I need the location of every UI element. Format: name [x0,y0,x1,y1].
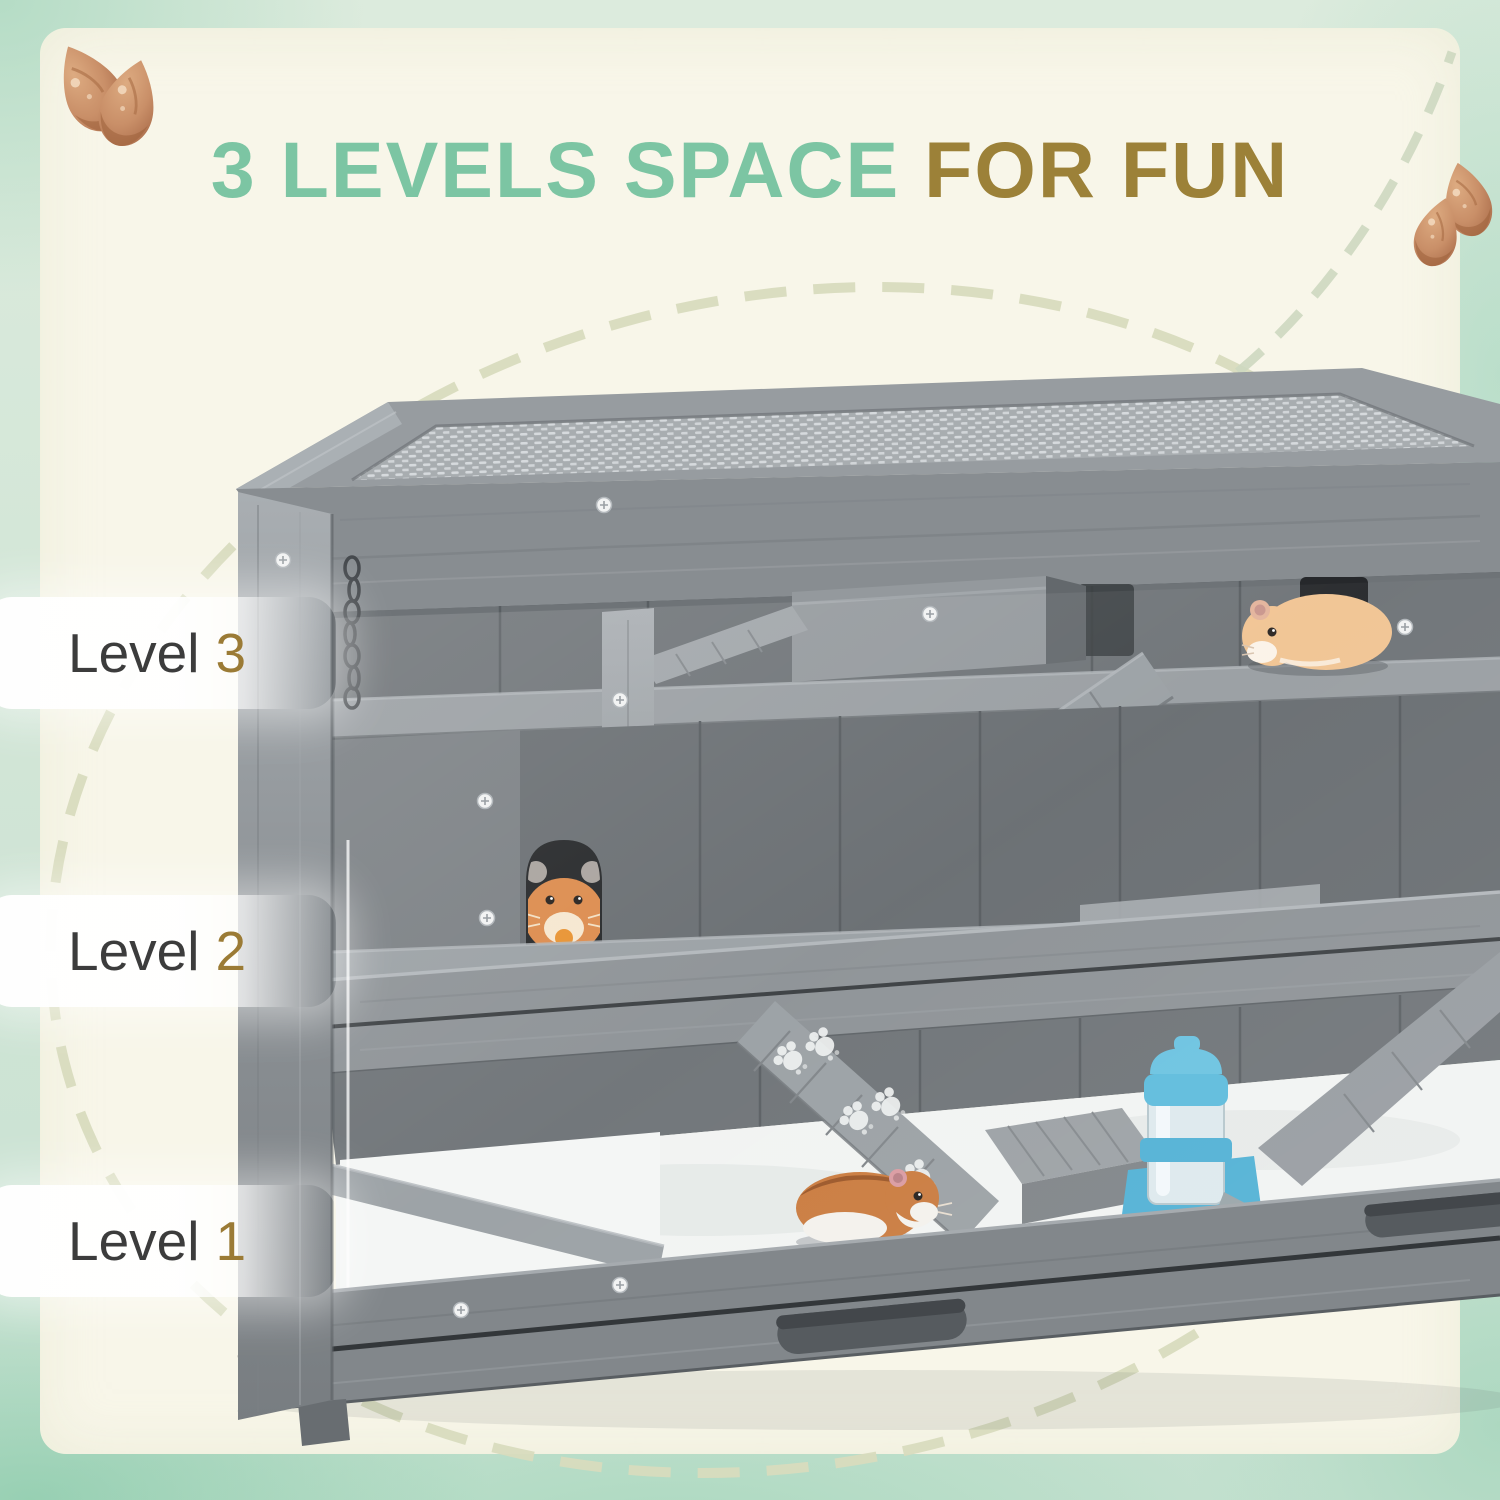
level-label-text: Level [68,1209,199,1273]
level-1-callout: Level 1 [0,1185,336,1297]
level-label-text: Level [68,919,199,983]
level-label-text: Level [68,621,199,685]
level-2-callout: Level 2 [0,895,336,1007]
level-number: 2 [215,919,246,983]
marketing-image: Level 3 Level 2 Level 1 3 LEVELS SPACEFO… [0,0,1500,1500]
level-number: 3 [215,621,246,685]
title-part-teal: 3 LEVELS SPACE [211,125,900,214]
title-part-gold: FOR FUN [924,125,1289,214]
cage-leg [298,1399,350,1446]
page-title: 3 LEVELS SPACEFOR FUN [0,124,1500,216]
level-3-callout: Level 3 [0,597,336,709]
level-number: 1 [215,1209,246,1273]
